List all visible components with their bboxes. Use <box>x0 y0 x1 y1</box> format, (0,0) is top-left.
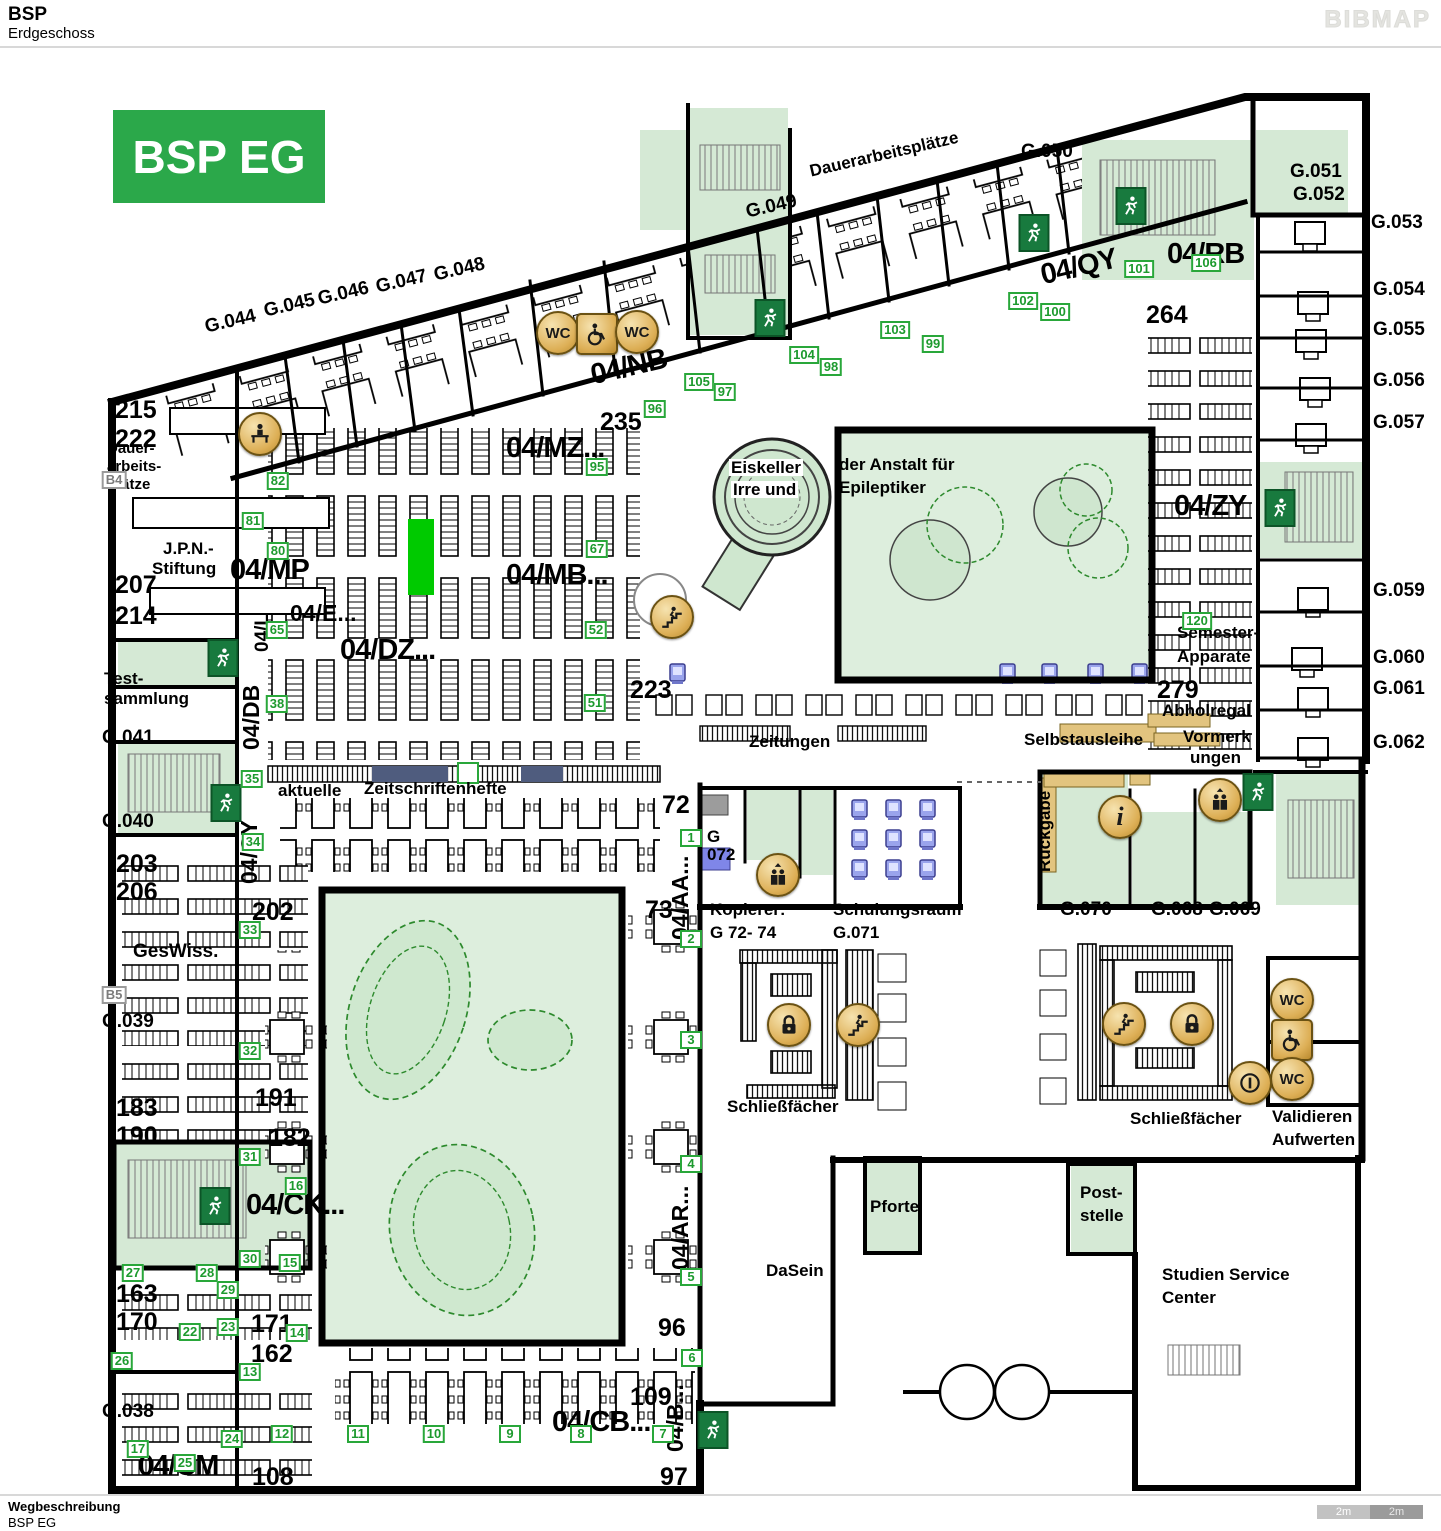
map-label: 04/ZY <box>1174 492 1246 521</box>
map-label: 04/E... <box>290 602 356 625</box>
map-label: Eiskeller <box>729 459 803 476</box>
map-label: 96 <box>658 1316 686 1341</box>
wheelchair-icon <box>1271 1019 1313 1061</box>
shelf-marker-80[interactable]: 80 <box>267 542 289 560</box>
map-label: Studien Service <box>1162 1266 1290 1283</box>
shelf-marker-23[interactable]: 23 <box>217 1318 239 1336</box>
map-label: G.041 <box>102 728 154 747</box>
map-label: 04/AR... <box>669 1186 692 1270</box>
shelf-marker-4[interactable]: 4 <box>680 1155 702 1173</box>
exit-icon <box>200 1187 231 1225</box>
map-label: 04/CY <box>238 820 261 884</box>
shelf-marker-51[interactable]: 51 <box>584 694 606 712</box>
map-label: Test- <box>104 670 143 687</box>
stairs-icon <box>1102 1002 1146 1046</box>
map-label: Aufwerten <box>1272 1131 1355 1148</box>
shelf-marker-81[interactable]: 81 <box>242 512 264 530</box>
stairs-icon <box>650 595 694 639</box>
map-label: G.062 <box>1373 733 1425 752</box>
map-label: aktuelle <box>278 782 341 799</box>
map-label: 163 <box>116 1282 158 1307</box>
map-label: Post- <box>1080 1184 1123 1201</box>
map-label: der Anstalt für <box>839 456 955 473</box>
shelf-marker-16[interactable]: 16 <box>285 1177 307 1195</box>
shelf-marker-34[interactable]: 34 <box>242 833 264 851</box>
shelf-marker-106[interactable]: 106 <box>1191 254 1221 272</box>
beacon-marker-B4[interactable]: B4 <box>102 471 127 489</box>
map-label: G.056 <box>1373 371 1425 390</box>
exit-icon <box>755 299 786 337</box>
wc-icon: WC <box>536 311 580 355</box>
shelf-marker-104[interactable]: 104 <box>789 346 819 364</box>
map-label: Dauer- <box>107 441 155 456</box>
map-label: G <box>707 828 720 845</box>
map-label: G.055 <box>1373 320 1425 339</box>
map-label: 04/CK... <box>246 1191 344 1220</box>
exit-icon <box>698 1411 729 1449</box>
shelf-marker-101[interactable]: 101 <box>1124 260 1154 278</box>
exit-icon <box>1019 214 1050 252</box>
shelf-marker-52[interactable]: 52 <box>585 621 607 639</box>
map-label: 72 <box>662 793 690 818</box>
scale-segment-1: 2m <box>1317 1505 1370 1519</box>
shelf-marker-27[interactable]: 27 <box>122 1264 144 1282</box>
shelf-marker-28[interactable]: 28 <box>196 1264 218 1282</box>
desk-person-icon <box>238 412 282 456</box>
shelf-marker-26[interactable]: 26 <box>111 1352 133 1370</box>
map-label: Kopierer: <box>710 901 786 918</box>
map-label: Center <box>1162 1289 1216 1306</box>
map-label: G.050 <box>1021 142 1073 161</box>
map-label: 04/CB... <box>552 1408 650 1437</box>
beacon-marker-B5[interactable]: B5 <box>102 986 127 1004</box>
map-label: GesWiss. <box>133 942 218 961</box>
exit-icon <box>211 784 242 822</box>
map-scale: 2m2m <box>1317 1502 1423 1520</box>
map-label: Zeitungen <box>749 733 830 750</box>
bibmap-page: BSP Erdgeschoss BIBMAP <box>0 0 1441 1531</box>
shelf-marker-17[interactable]: 17 <box>127 1440 149 1458</box>
map-label: 108 <box>252 1465 294 1490</box>
shelf-marker-9[interactable]: 9 <box>499 1425 521 1443</box>
shelf-marker-105[interactable]: 105 <box>684 373 714 391</box>
map-label: Irre und <box>731 481 798 498</box>
shelf-marker-29[interactable]: 29 <box>217 1281 239 1299</box>
coin-icon <box>1228 1061 1272 1105</box>
map-label: 04/MP <box>230 556 309 585</box>
bibmap-logo: BIBMAP <box>1324 6 1431 34</box>
lock-icon <box>767 1003 811 1047</box>
map-label: 203 <box>116 852 158 877</box>
page-subtitle: Erdgeschoss <box>8 25 95 42</box>
shelf-marker-102[interactable]: 102 <box>1008 292 1038 310</box>
floorplan[interactable]: BSP EG G.044G.045G.046G.047G.048G.049Dau… <box>0 0 1441 1531</box>
map-label: G.068 <box>1151 900 1203 919</box>
elevator-icon <box>1198 778 1242 822</box>
map-label: Zeitschriftenhefte <box>364 780 507 797</box>
shelf-marker-2[interactable]: 2 <box>680 930 702 948</box>
shelf-marker-31[interactable]: 31 <box>239 1148 261 1166</box>
map-label: Apparate <box>1177 648 1251 665</box>
shelf-marker-13[interactable]: 13 <box>239 1363 261 1381</box>
map-label: G.069 <box>1209 900 1261 919</box>
shelf-marker-95[interactable]: 95 <box>586 458 608 476</box>
floor-badge: BSP EG <box>113 110 325 203</box>
map-label: Abholregal <box>1162 702 1251 719</box>
map-label: Validieren <box>1272 1108 1352 1125</box>
shelf-marker-99[interactable]: 99 <box>922 335 944 353</box>
shelf-marker-6[interactable]: 6 <box>681 1349 703 1367</box>
map-label: G.051 <box>1290 162 1342 181</box>
scale-segment-2: 2m <box>1370 1505 1423 1519</box>
map-label: G 72- 74 <box>710 924 776 941</box>
map-label: 04/DZ... <box>340 636 435 665</box>
map-label: 04/MB... <box>506 561 608 590</box>
map-label: ungen <box>1190 749 1241 766</box>
shelf-marker-15[interactable]: 15 <box>279 1254 301 1272</box>
map-label: sammlung <box>104 690 189 707</box>
shelf-marker-35[interactable]: 35 <box>241 770 263 788</box>
shelf-marker-98[interactable]: 98 <box>820 358 842 376</box>
map-label: G.070 <box>1060 900 1112 919</box>
wheelchair-icon <box>576 313 618 355</box>
shelf-marker-120[interactable]: 120 <box>1182 612 1212 630</box>
shelf-marker-11[interactable]: 11 <box>347 1425 369 1443</box>
map-label: G.038 <box>102 1402 154 1421</box>
map-label: 182 <box>269 1126 311 1151</box>
shelf-marker-22[interactable]: 22 <box>179 1323 201 1341</box>
map-label: G.039 <box>102 1012 154 1031</box>
map-label: G.059 <box>1373 581 1425 600</box>
shelf-marker-7[interactable]: 7 <box>652 1425 674 1443</box>
shelf-marker-100[interactable]: 100 <box>1040 303 1070 321</box>
shelf-marker-82[interactable]: 82 <box>267 472 289 490</box>
map-label: 207 <box>115 573 157 598</box>
map-label: 04/AA... <box>669 856 692 940</box>
shelf-marker-1[interactable]: 1 <box>680 829 702 847</box>
exit-icon <box>1265 489 1296 527</box>
info-icon: i <box>1098 795 1142 839</box>
shelf-marker-3[interactable]: 3 <box>680 1031 702 1049</box>
shelf-marker-96[interactable]: 96 <box>644 400 666 418</box>
wc-icon: WC <box>1270 1057 1314 1101</box>
map-label: Stiftung <box>152 560 216 577</box>
header: BSP Erdgeschoss BIBMAP <box>0 0 1441 48</box>
shelf-marker-67[interactable]: 67 <box>586 540 608 558</box>
shelf-marker-25[interactable]: 25 <box>174 1454 196 1472</box>
shelf-marker-14[interactable]: 14 <box>286 1324 308 1342</box>
map-label: G.054 <box>1373 280 1425 299</box>
map-label: 279 <box>1157 678 1199 703</box>
exit-icon <box>208 639 239 677</box>
shelf-marker-10[interactable]: 10 <box>423 1425 445 1443</box>
page-title: BSP <box>8 4 47 26</box>
shelf-marker-12[interactable]: 12 <box>271 1425 293 1443</box>
map-label: 235 <box>600 410 642 435</box>
map-label: 183 <box>116 1096 158 1121</box>
shelf-marker-32[interactable]: 32 <box>239 1042 261 1060</box>
map-label: G.057 <box>1373 413 1425 432</box>
map-label: 215 <box>115 398 157 423</box>
shelf-marker-24[interactable]: 24 <box>221 1430 243 1448</box>
exit-icon <box>1116 187 1147 225</box>
shelf-marker-8[interactable]: 8 <box>570 1425 592 1443</box>
footer: Wegbeschreibung BSP EG 2m2m <box>0 1494 1441 1531</box>
map-label: Epileptiker <box>839 479 926 496</box>
map-label: Pforte <box>870 1198 919 1215</box>
map-label: 04/DB <box>240 685 263 750</box>
map-label: Schließfächer <box>1130 1110 1242 1127</box>
map-label: Schulungsraum <box>833 901 961 918</box>
shelf-marker-30[interactable]: 30 <box>239 1250 261 1268</box>
map-label: G.060 <box>1373 648 1425 667</box>
shelf-marker-5[interactable]: 5 <box>680 1268 702 1286</box>
map-label: 264 <box>1146 303 1188 328</box>
wc-icon: WC <box>615 310 659 354</box>
elevator-icon <box>756 853 800 897</box>
shelf-marker-65[interactable]: 65 <box>266 621 288 639</box>
wc-icon: WC <box>1270 978 1314 1022</box>
lock-icon <box>1170 1002 1214 1046</box>
shelf-marker-38[interactable]: 38 <box>266 695 288 713</box>
shelf-marker-103[interactable]: 103 <box>880 321 910 339</box>
stairs-icon <box>836 1003 880 1047</box>
map-label: Rückgabe <box>1036 791 1053 872</box>
map-label: stelle <box>1080 1207 1123 1224</box>
exit-icon <box>1243 773 1274 811</box>
shelf-marker-33[interactable]: 33 <box>239 921 261 939</box>
map-label: 223 <box>630 678 672 703</box>
map-label: J.P.N.- <box>163 540 214 557</box>
map-label: Schließfächer <box>727 1098 839 1115</box>
map-label: 206 <box>116 880 158 905</box>
shelf-marker-97[interactable]: 97 <box>714 383 736 401</box>
map-label: G.061 <box>1373 679 1425 698</box>
map-label: DaSein <box>766 1262 824 1279</box>
map-label: 97 <box>660 1465 688 1490</box>
map-label: Selbstausleihe <box>1024 731 1143 748</box>
footer-heading: Wegbeschreibung <box>8 1499 120 1514</box>
map-label: 190 <box>116 1124 158 1149</box>
map-label: G.040 <box>102 812 154 831</box>
map-label: Vormerk <box>1183 728 1251 745</box>
map-label: 170 <box>116 1310 158 1335</box>
map-label: 191 <box>255 1086 297 1111</box>
map-label: G.053 <box>1371 213 1423 232</box>
map-label: 214 <box>115 604 157 629</box>
map-label: G.071 <box>833 924 879 941</box>
map-label: G.052 <box>1293 185 1345 204</box>
map-label: 072 <box>707 846 735 863</box>
footer-floor-name: BSP EG <box>8 1515 56 1530</box>
